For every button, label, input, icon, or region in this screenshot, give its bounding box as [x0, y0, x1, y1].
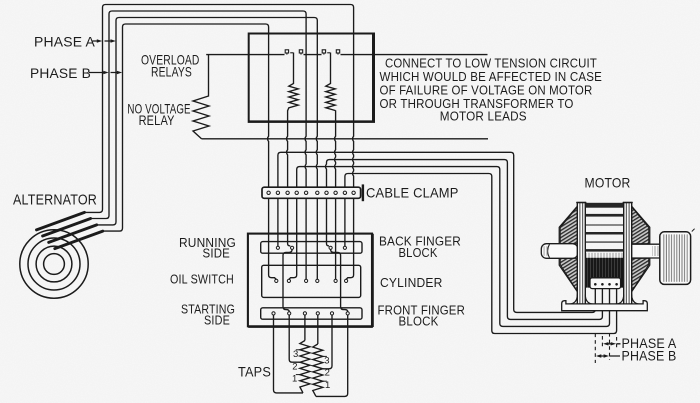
- svg-text:BLOCK: BLOCK: [399, 245, 438, 260]
- svg-text:ALTERNATOR: ALTERNATOR: [13, 192, 97, 209]
- svg-text:BLOCK: BLOCK: [399, 313, 439, 328]
- svg-text:PHASE A: PHASE A: [34, 34, 95, 50]
- svg-text:PHASE B: PHASE B: [30, 65, 91, 81]
- svg-text:OIL SWITCH: OIL SWITCH: [170, 271, 234, 286]
- svg-text:SIDE: SIDE: [203, 245, 231, 260]
- svg-text:3: 3: [324, 355, 329, 366]
- svg-text:3: 3: [293, 349, 298, 360]
- svg-text:MOTOR: MOTOR: [585, 175, 631, 191]
- svg-text:CYLINDER: CYLINDER: [380, 275, 443, 290]
- svg-text:PHASE B: PHASE B: [622, 348, 677, 364]
- svg-text:RELAY: RELAY: [139, 112, 175, 128]
- svg-text:CABLE CLAMP: CABLE CLAMP: [366, 185, 459, 201]
- svg-text:MOTOR LEADS: MOTOR LEADS: [440, 109, 527, 124]
- svg-text:TAPS: TAPS: [238, 363, 271, 379]
- svg-text:1: 1: [292, 374, 297, 385]
- svg-text:2: 2: [325, 368, 330, 379]
- svg-text:2: 2: [292, 361, 297, 372]
- svg-text:RELAYS: RELAYS: [151, 64, 192, 80]
- svg-text:1: 1: [325, 380, 330, 391]
- svg-text:SIDE: SIDE: [204, 312, 230, 327]
